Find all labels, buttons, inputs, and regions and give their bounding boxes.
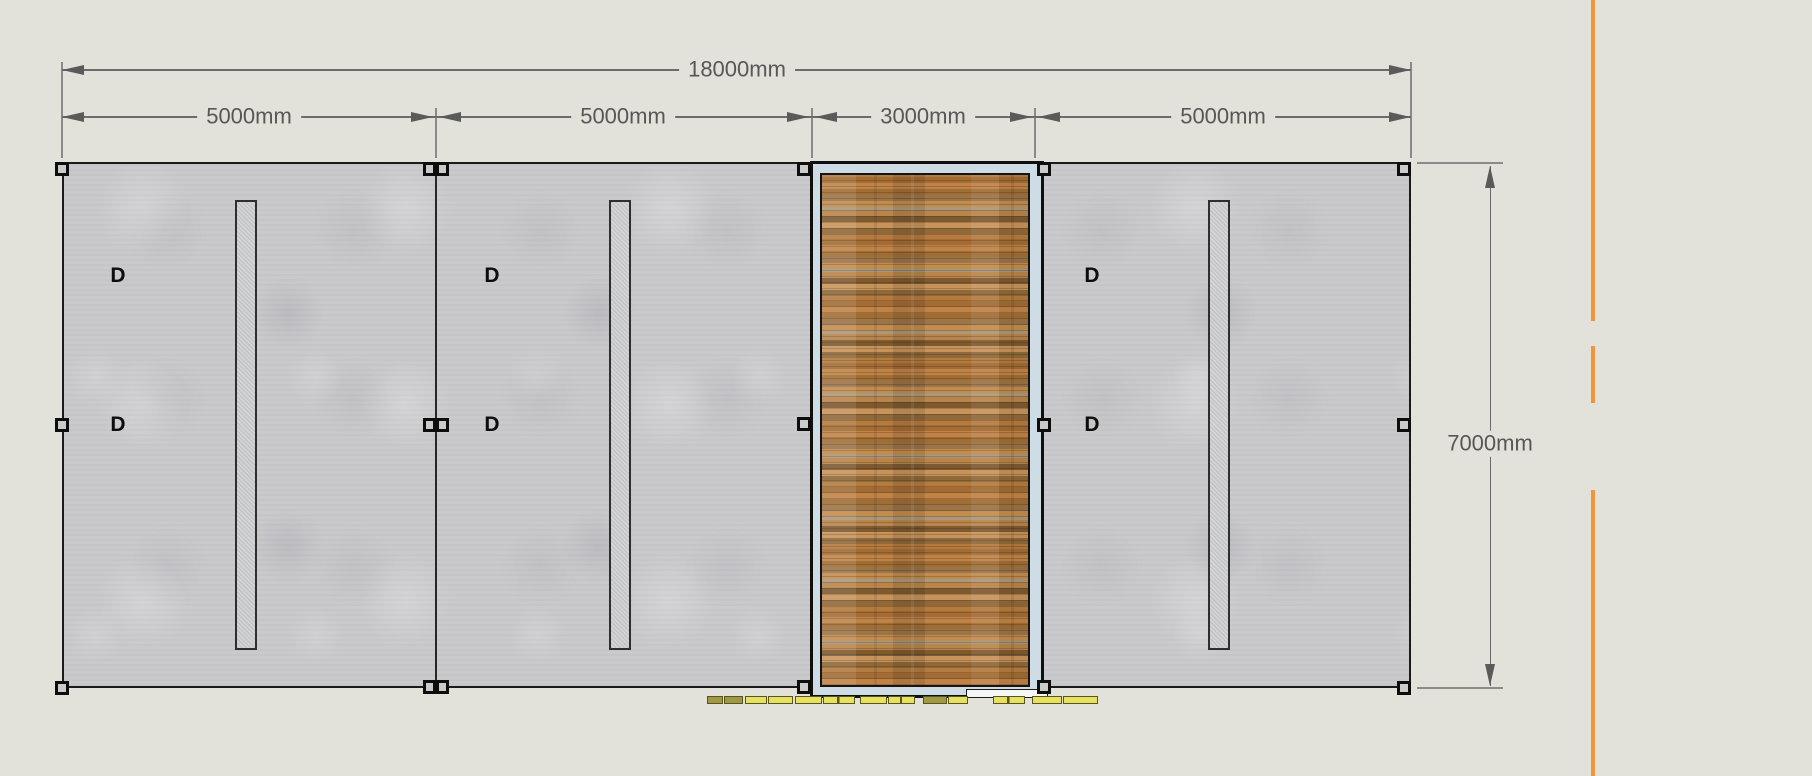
clamp-connector[interactable] bbox=[1037, 418, 1051, 432]
clamp-connector[interactable] bbox=[55, 162, 69, 176]
foundation-dash bbox=[993, 696, 1025, 704]
dimension-label-total: 18000mm bbox=[679, 57, 795, 83]
dimension-label-bay2: 5000mm bbox=[571, 104, 675, 130]
arrowhead-down-icon bbox=[1485, 664, 1495, 686]
extension-line bbox=[1417, 162, 1503, 164]
arrowhead-left-icon bbox=[1038, 112, 1060, 122]
dimension-line bbox=[1490, 166, 1492, 686]
dimension-label-height: 7000mm bbox=[1438, 431, 1542, 457]
door-marker: D bbox=[108, 265, 128, 287]
batten-strip[interactable] bbox=[1208, 200, 1230, 650]
axis-guide-line bbox=[1591, 346, 1595, 403]
arrowhead-left-icon bbox=[62, 65, 84, 75]
foundation-dash bbox=[923, 696, 947, 704]
batten-strip[interactable] bbox=[609, 200, 631, 650]
door-marker: D bbox=[108, 414, 128, 436]
axis-guide-line bbox=[1591, 490, 1595, 776]
arrowhead-right-icon bbox=[411, 112, 433, 122]
dimension-label-bay3: 3000mm bbox=[871, 104, 975, 130]
foundation-dash bbox=[707, 696, 723, 704]
clamp-connector[interactable] bbox=[1397, 681, 1411, 695]
dimension-label-bay1: 5000mm bbox=[197, 104, 301, 130]
clamp-connector[interactable] bbox=[1397, 418, 1411, 432]
arrowhead-right-icon bbox=[1389, 65, 1411, 75]
batten-strip[interactable] bbox=[235, 200, 257, 650]
foundation-dash bbox=[724, 696, 743, 704]
clamp-connector-pair[interactable] bbox=[423, 418, 449, 432]
door-marker: D bbox=[1082, 265, 1102, 287]
arrowhead-left-icon bbox=[439, 112, 461, 122]
extension-line bbox=[1417, 687, 1503, 689]
clamp-connector-pair[interactable] bbox=[423, 162, 449, 176]
foundation-dash bbox=[948, 696, 968, 704]
axis-guide-line bbox=[1591, 0, 1595, 321]
foundation-dash bbox=[860, 696, 887, 704]
clamp-connector[interactable] bbox=[55, 681, 69, 695]
foundation-dash bbox=[1063, 696, 1098, 704]
foundation-dash bbox=[1032, 696, 1062, 704]
extension-line bbox=[1410, 62, 1412, 158]
drawing-canvas: D D D D D D 18000mm 5000mm 5000mm 3000mm… bbox=[0, 0, 1812, 776]
extension-line bbox=[61, 62, 63, 158]
clamp-connector[interactable] bbox=[55, 418, 69, 432]
clamp-connector-pair[interactable] bbox=[423, 680, 449, 694]
clamp-connector[interactable] bbox=[797, 162, 811, 176]
foundation-dash bbox=[888, 696, 915, 704]
clamp-connector[interactable] bbox=[797, 417, 811, 431]
foundation-dash bbox=[768, 696, 793, 704]
arrowhead-left-icon bbox=[62, 112, 84, 122]
arrowhead-right-icon bbox=[787, 112, 809, 122]
foundation-dash bbox=[795, 696, 822, 704]
door-marker: D bbox=[1082, 414, 1102, 436]
clamp-connector[interactable] bbox=[797, 680, 811, 694]
arrowhead-right-icon bbox=[1010, 112, 1032, 122]
dimension-label-bay4: 5000mm bbox=[1171, 104, 1275, 130]
arrowhead-right-icon bbox=[1389, 112, 1411, 122]
foundation-dash bbox=[745, 696, 767, 704]
wood-panel[interactable] bbox=[820, 173, 1030, 687]
clamp-connector[interactable] bbox=[1037, 680, 1051, 694]
foundation-dash bbox=[823, 696, 855, 704]
door-marker: D bbox=[482, 265, 502, 287]
arrowhead-up-icon bbox=[1485, 166, 1495, 188]
arrowhead-left-icon bbox=[815, 112, 837, 122]
door-marker: D bbox=[482, 414, 502, 436]
clamp-connector[interactable] bbox=[1037, 162, 1051, 176]
clamp-connector[interactable] bbox=[1397, 162, 1411, 176]
